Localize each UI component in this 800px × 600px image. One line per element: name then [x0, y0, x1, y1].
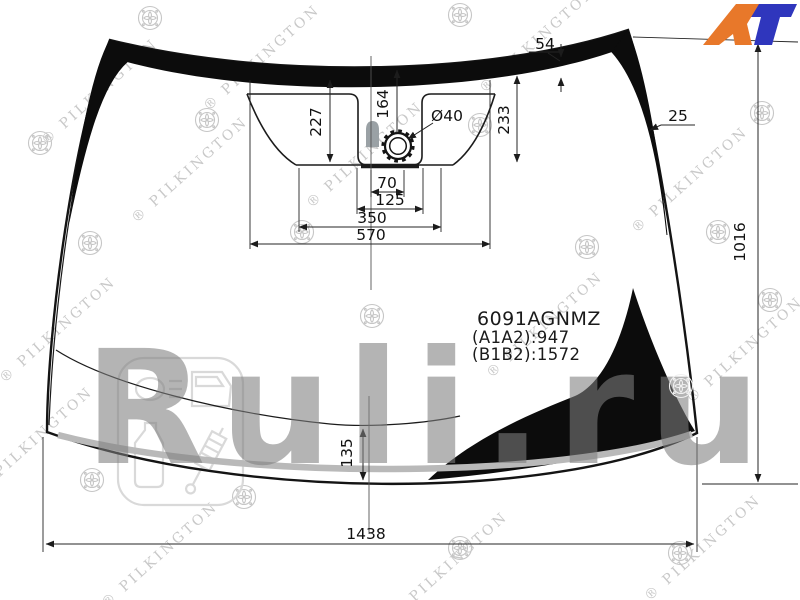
at-logo-a: [703, 4, 759, 45]
windshield-diagram-page: ® PILKINGTON ® PILKINGTON ® PILKINGTON ®…: [0, 0, 800, 600]
at-logo: [0, 0, 800, 600]
